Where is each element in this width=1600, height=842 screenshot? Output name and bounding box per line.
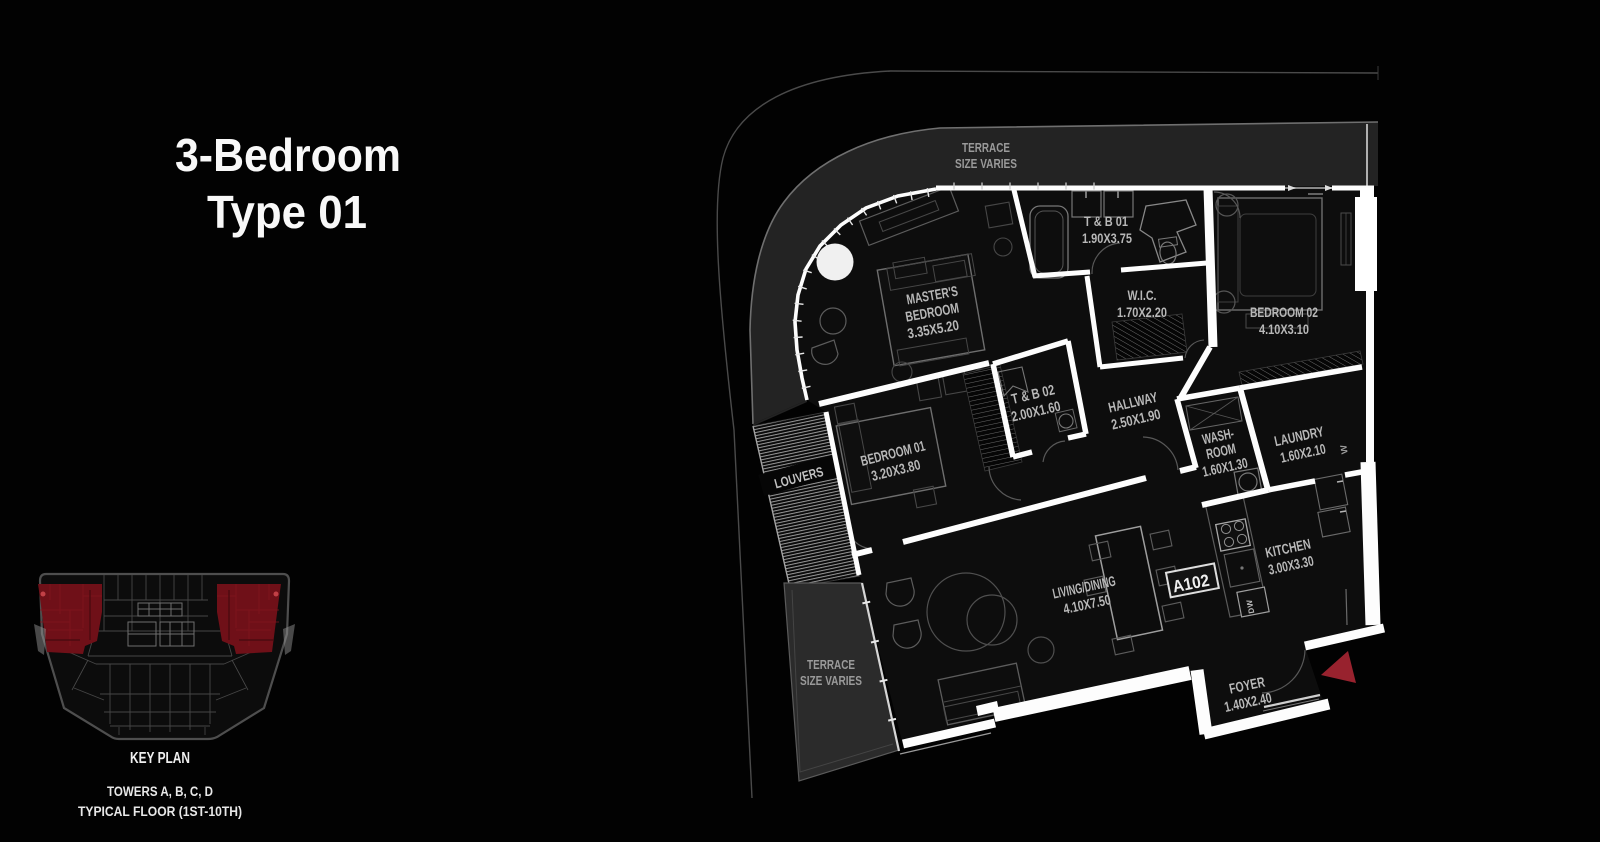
svg-text:Type 01: Type 01 (207, 186, 367, 238)
svg-text:SIZE VARIES: SIZE VARIES (800, 673, 862, 688)
svg-text:TERRACE: TERRACE (962, 140, 1010, 155)
svg-text:3-Bedroom: 3-Bedroom (175, 129, 401, 181)
svg-text:SIZE VARIES: SIZE VARIES (955, 156, 1017, 171)
svg-text:W.I.C.: W.I.C. (1128, 288, 1157, 304)
svg-text:BEDROOM 02: BEDROOM 02 (1250, 305, 1318, 321)
svg-text:KEY PLAN: KEY PLAN (130, 750, 190, 767)
svg-text:4.10X3.10: 4.10X3.10 (1259, 322, 1309, 338)
svg-text:T & B 01: T & B 01 (1084, 214, 1128, 230)
svg-text:1.90X3.75: 1.90X3.75 (1082, 231, 1132, 247)
svg-text:1.70X2.20: 1.70X2.20 (1117, 305, 1167, 321)
svg-text:TERRACE: TERRACE (807, 657, 855, 672)
svg-text:TOWERS A, B, C, D: TOWERS A, B, C, D (107, 784, 213, 799)
svg-text:TYPICAL FLOOR (1ST-10TH): TYPICAL FLOOR (1ST-10TH) (78, 804, 242, 819)
